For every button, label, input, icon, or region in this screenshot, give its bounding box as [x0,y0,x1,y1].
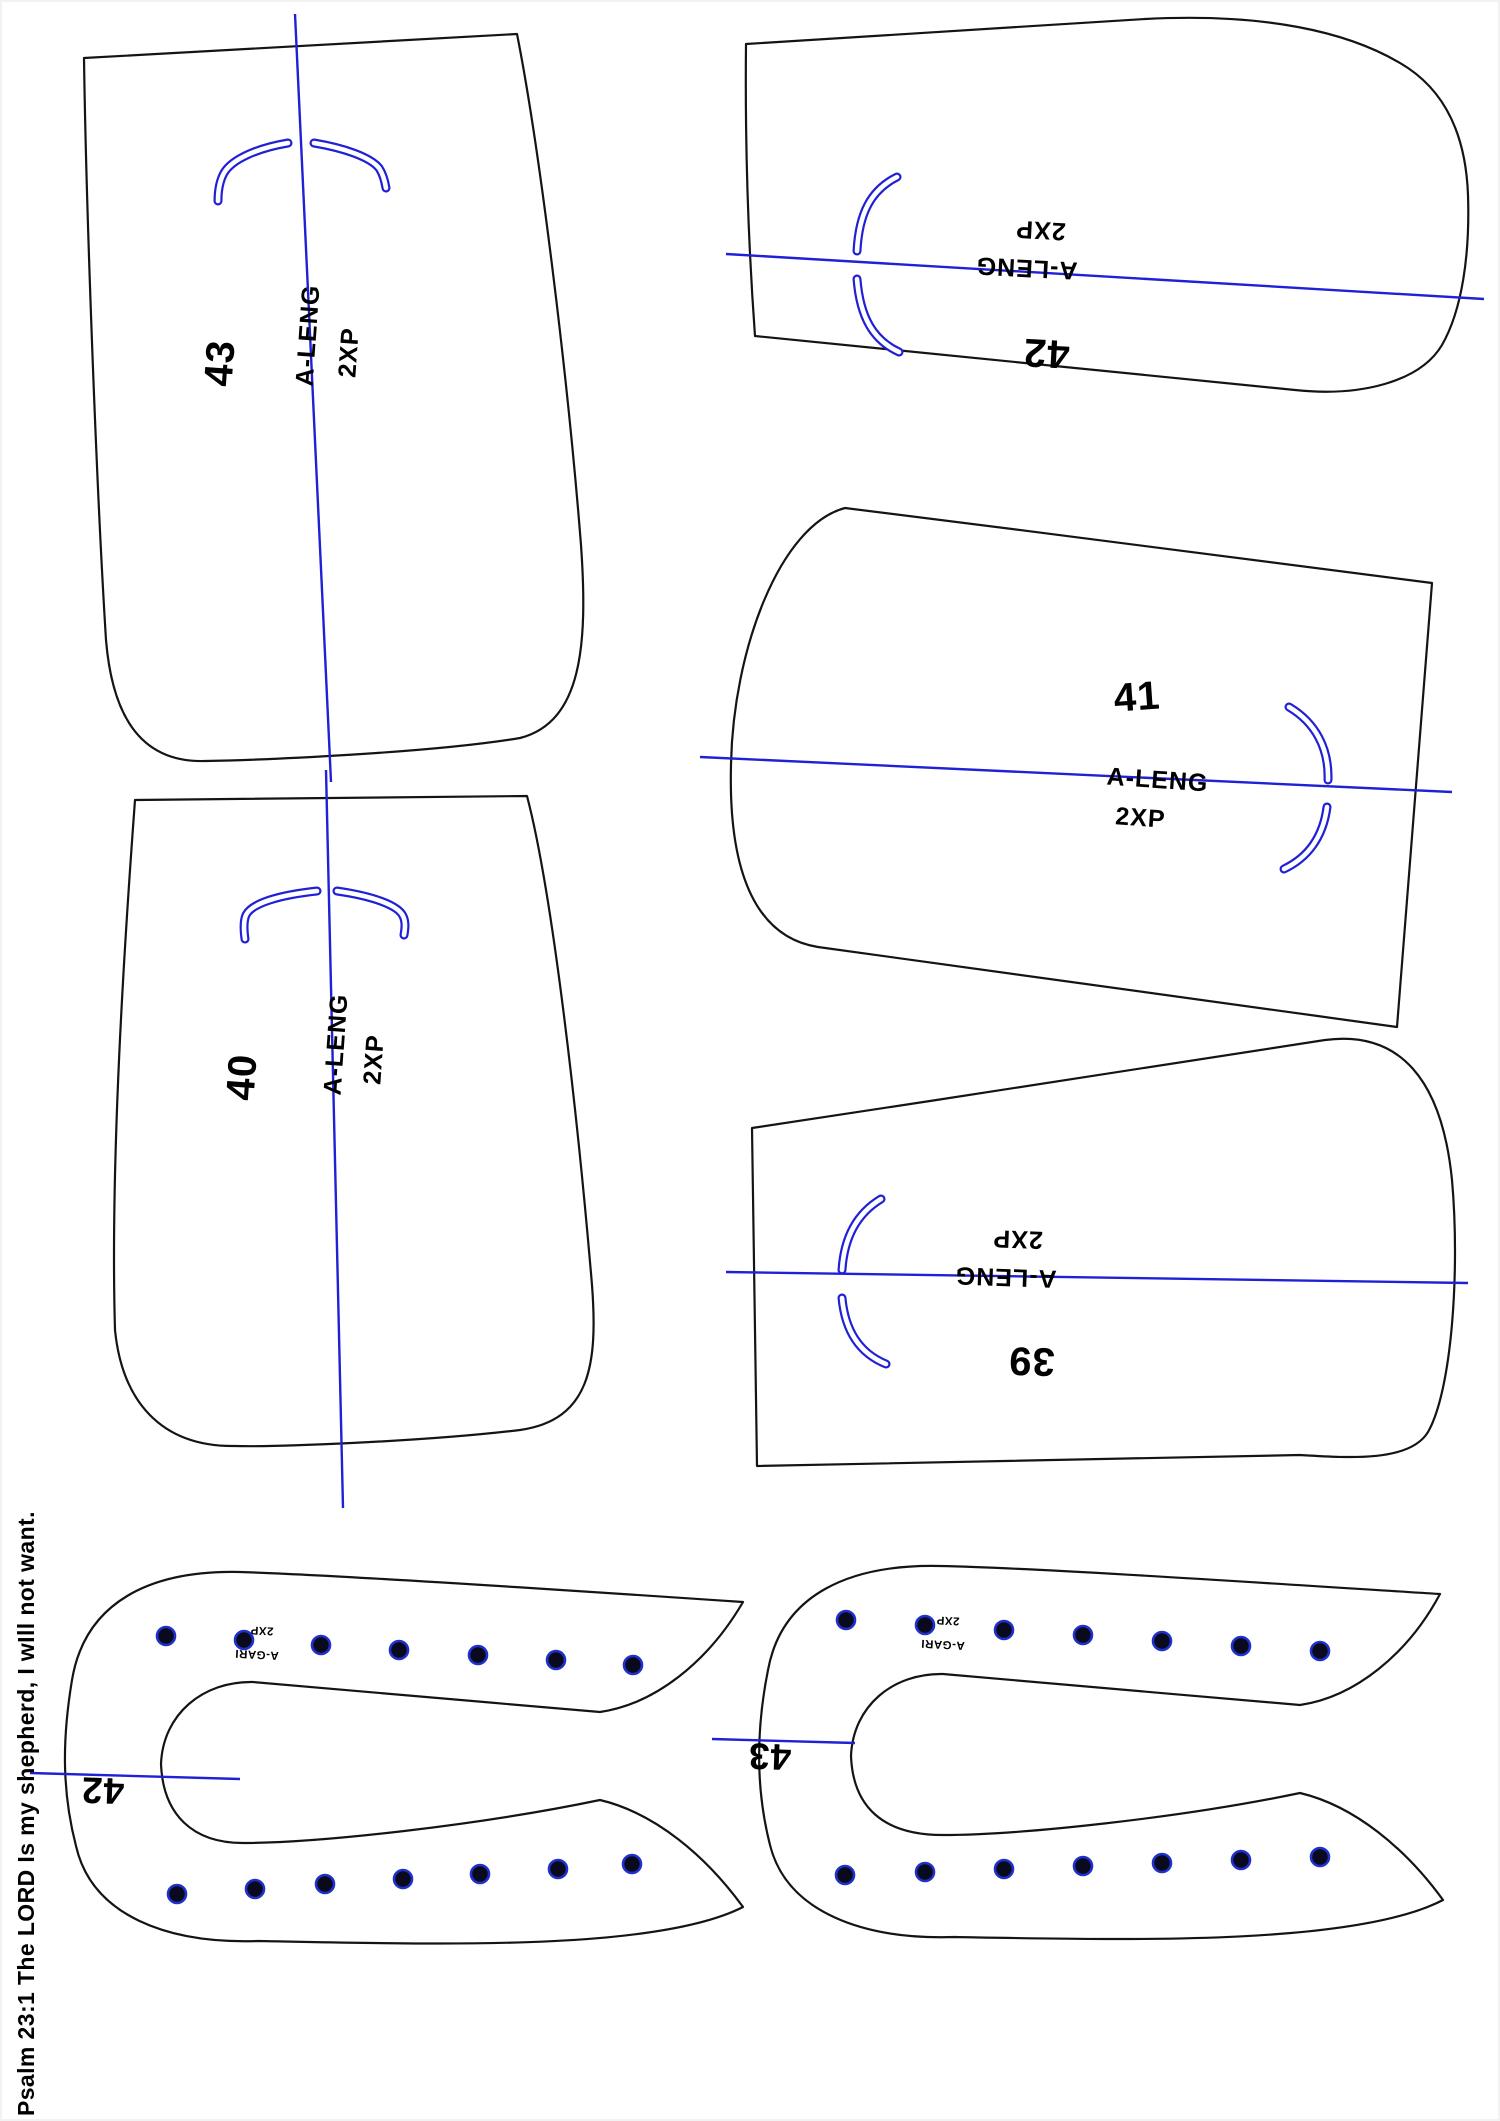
piece-43-number-label: 43 [196,338,243,387]
piece-42-outline [746,18,1468,392]
band-42-number-label: 42 [80,1769,125,1811]
piece-39-outline [752,1039,1455,1466]
band-43-outline [759,1566,1443,1939]
piece-42-number-label: 42 [1022,330,1071,376]
footer-psalm-text: Psalm 23:1 The LORD Is my shepherd, I wI… [13,1511,39,2116]
band-43-number-label: 43 [747,1735,792,1777]
piece-41-number-label: 41 [1112,673,1161,720]
piece-43-size-label: 2XP [333,326,364,378]
band-42-grain-label: A-GARI [235,1647,279,1661]
piece-39-number-label: 39 [1008,1338,1056,1384]
piece-41-size-label: 2XP [1115,802,1167,833]
pattern-piece-40: 40 A-LENG 2XP [114,770,594,1508]
band-43-grain-label: A-GARI [921,1637,965,1651]
pattern-piece-band-42: 2XP A-GARI 42 [30,1572,743,1944]
piece-40-size-label: 2XP [358,1033,389,1085]
pattern-sheet-canvas: 43 A-LENG 2XP 40 A-LENG 2XP 2XP A-LE [0,0,1500,2121]
pattern-piece-band-43: 2XP A-GARI 43 [712,1566,1443,1939]
pattern-sheet-page: 43 A-LENG 2XP 40 A-LENG 2XP 2XP A-LE [0,0,1500,2121]
piece-42-size-label: 2XP [1015,215,1067,246]
pattern-piece-39: 2XP A-LENG 39 [726,1039,1468,1466]
pattern-piece-41: 41 A-LENG 2XP [700,508,1452,1027]
piece-42-grain-label: A-LENG [975,251,1078,284]
band-42-size-label: 2XP [250,1623,274,1636]
pattern-piece-43: 43 A-LENG 2XP [84,14,583,782]
piece-40-number-label: 40 [218,1052,265,1101]
piece-39-grain-label: A-LENG [954,1261,1057,1293]
pattern-piece-42: 2XP A-LENG 42 [726,18,1484,392]
band-43-size-label: 2XP [936,1613,960,1626]
piece-39-size-label: 2XP [992,1224,1043,1254]
